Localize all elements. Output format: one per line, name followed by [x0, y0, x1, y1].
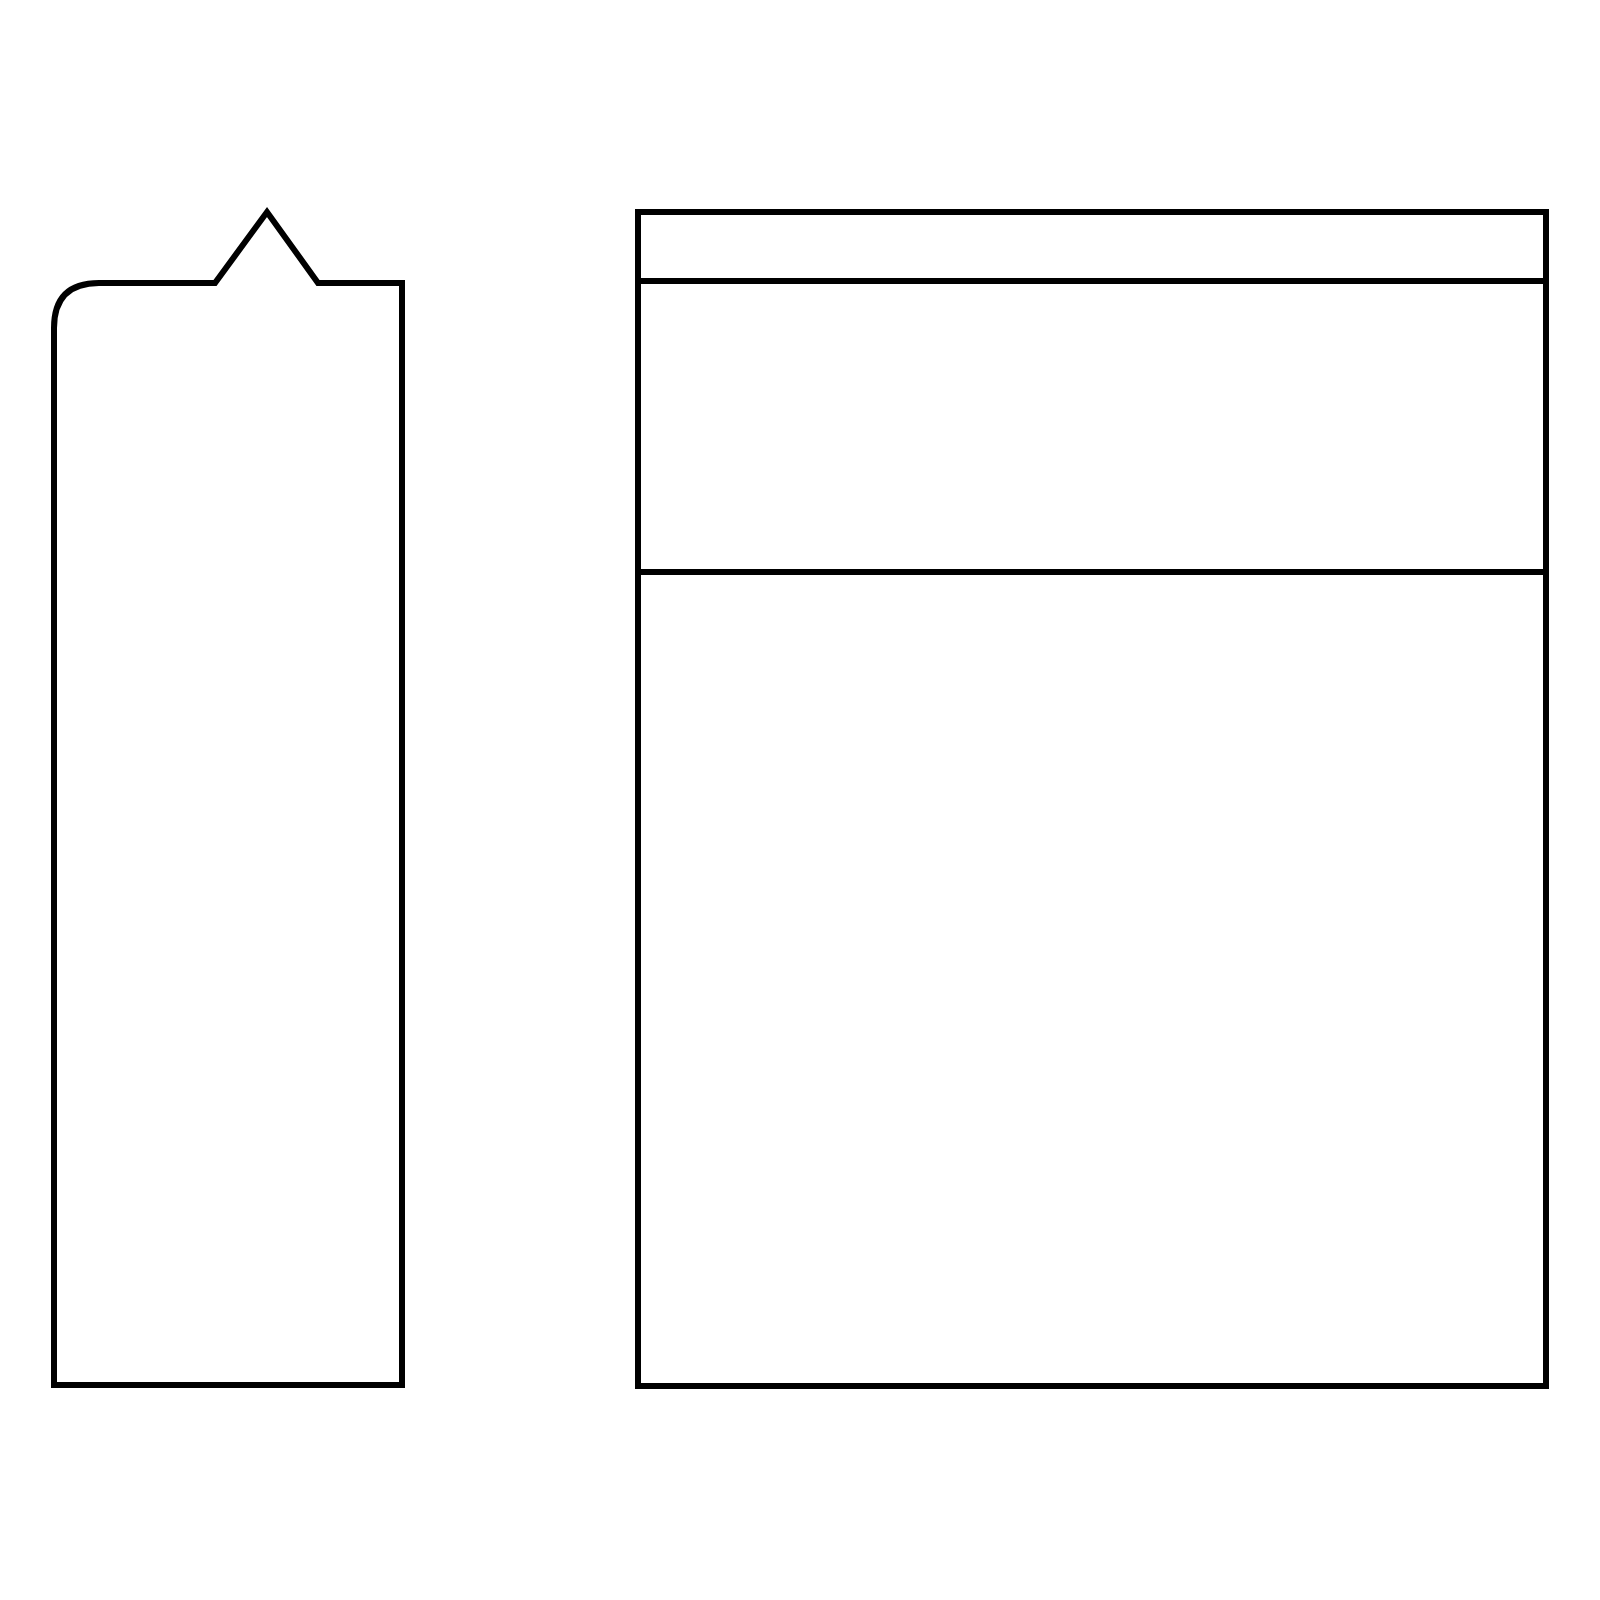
notched-panel-shape — [54, 212, 402, 1385]
canvas — [0, 0, 1600, 1600]
card-outline-shape — [638, 212, 1546, 1386]
line-drawing — [0, 0, 1600, 1600]
